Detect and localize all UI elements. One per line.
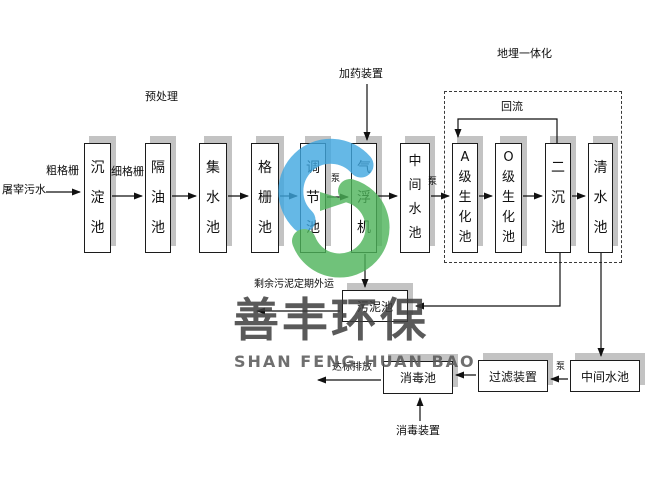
tank-regulation: 调节池 bbox=[300, 143, 326, 253]
tank-label: 过滤装置 bbox=[489, 368, 537, 385]
tank-label: O级生化池 bbox=[502, 148, 515, 248]
tank-label: 污泥池 bbox=[357, 298, 393, 315]
tank-label: 气浮机 bbox=[357, 153, 371, 243]
tank-label: 消毒池 bbox=[400, 369, 436, 386]
buried-integration-label: 地埋一体化 bbox=[497, 47, 552, 60]
tank-label: 中间水池 bbox=[409, 150, 422, 246]
tank-label: 隔油池 bbox=[151, 153, 165, 243]
pump-label-1: 泵 bbox=[331, 174, 340, 185]
tank-oil-separation: 隔油池 bbox=[145, 143, 171, 253]
source-label: 屠宰污水 bbox=[2, 183, 46, 196]
tank-label: 格栅池 bbox=[258, 153, 272, 243]
tank-sludge: 污泥池 bbox=[342, 290, 408, 322]
discharge-label: 达标排放 bbox=[332, 362, 372, 374]
tank-intermediate-1: 中间水池 bbox=[400, 143, 430, 253]
filter-device: 过滤装置 bbox=[478, 360, 548, 392]
tank-collection: 集水池 bbox=[199, 143, 227, 253]
tank-clean-water: 清水池 bbox=[588, 143, 613, 253]
tank-label: 集水池 bbox=[206, 153, 220, 243]
tank-biochemical-o: O级生化池 bbox=[495, 143, 522, 253]
tank-label: 二沉池 bbox=[551, 153, 565, 243]
air-flotation-machine: 气浮机 bbox=[351, 143, 377, 253]
tank-label: 清水池 bbox=[594, 153, 608, 243]
dosing-device-label: 加药装置 bbox=[339, 67, 383, 80]
tank-disinfection: 消毒池 bbox=[383, 361, 453, 394]
reflux-label: 回流 bbox=[501, 100, 523, 113]
excess-sludge-label: 剩余污泥定期外运 bbox=[254, 279, 334, 291]
pretreatment-label: 预处理 bbox=[145, 90, 178, 103]
tank-secondary-sedimentation: 二沉池 bbox=[545, 143, 571, 253]
tank-label: A级生化池 bbox=[459, 148, 472, 248]
fine-screen-label: 细格栅 bbox=[111, 165, 144, 178]
coarse-screen-label: 粗格栅 bbox=[46, 164, 79, 177]
pump-label-3: 泵 bbox=[556, 362, 565, 373]
tank-intermediate-2: 中间水池 bbox=[570, 360, 640, 392]
tank-grid: 格栅池 bbox=[251, 143, 279, 253]
pump-label-2: 泵 bbox=[428, 177, 437, 188]
tank-label: 沉淀池 bbox=[91, 153, 105, 243]
tank-label: 调节池 bbox=[306, 153, 320, 243]
process-flow-diagram: 沉淀池 隔油池 集水池 格栅池 调节池 气浮机 中间水池 A级生化池 O级生化池… bbox=[0, 0, 650, 500]
disinfection-device-label: 消毒装置 bbox=[396, 424, 440, 437]
tank-sedimentation: 沉淀池 bbox=[84, 143, 111, 253]
tank-label: 中间水池 bbox=[581, 368, 629, 385]
tank-biochemical-a: A级生化池 bbox=[452, 143, 478, 253]
